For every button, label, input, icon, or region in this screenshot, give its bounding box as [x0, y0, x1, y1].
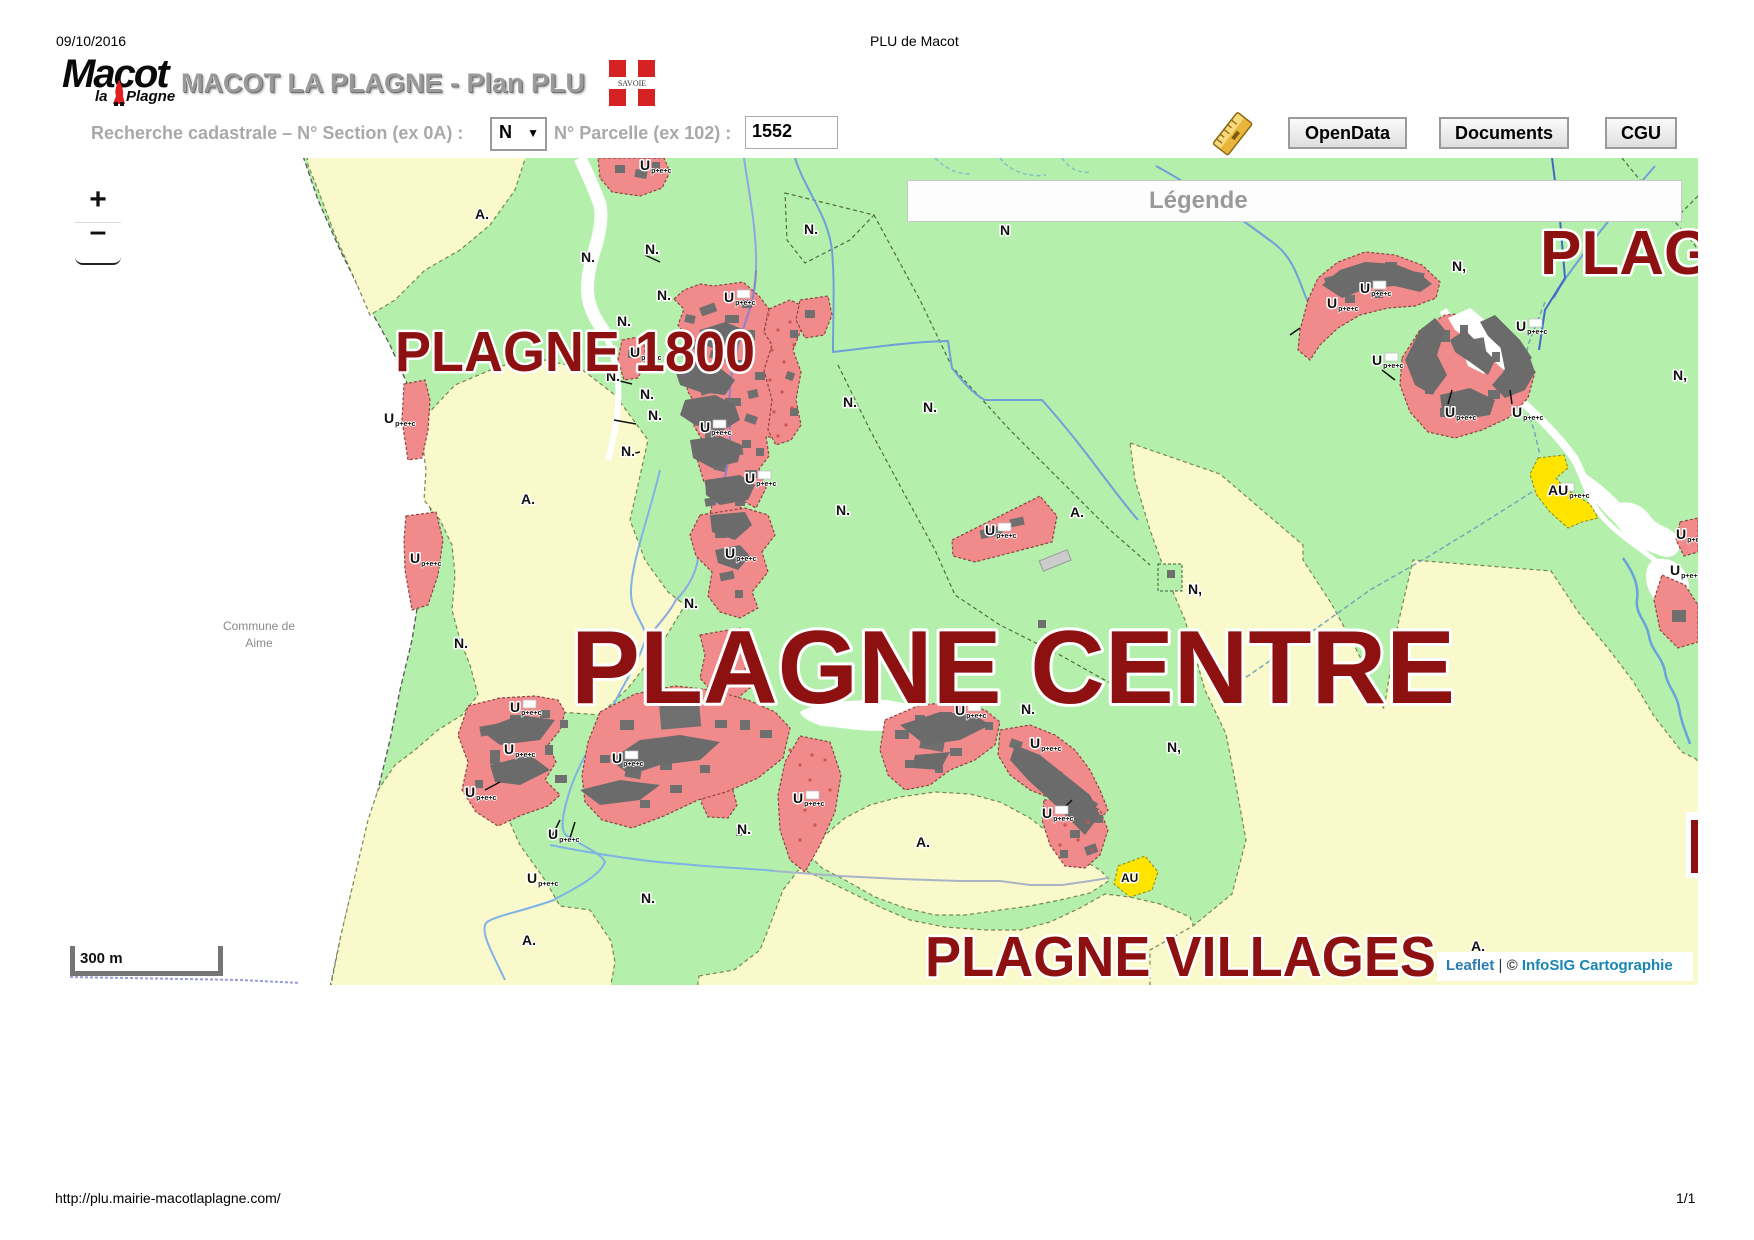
svg-text:N.: N. — [843, 394, 857, 410]
svg-text:N.: N. — [923, 399, 937, 415]
svg-text:SAVOIE: SAVOIE — [618, 79, 646, 88]
svg-text:A.: A. — [521, 491, 535, 507]
svg-text:A.: A. — [522, 932, 536, 948]
svg-text:N.: N. — [657, 287, 671, 303]
svg-text:N.: N. — [621, 443, 635, 459]
svg-text:N.: N. — [836, 502, 850, 518]
svg-text:N.: N. — [454, 635, 468, 651]
svg-text:A.: A. — [475, 206, 489, 222]
svg-text:PLAGNE 1800: PLAGNE 1800 — [395, 320, 755, 384]
svg-text:N,: N, — [1167, 739, 1181, 755]
svg-text:N,: N, — [1673, 367, 1687, 383]
svg-text:PLAGNE VILLAGES: PLAGNE VILLAGES — [925, 925, 1436, 985]
svg-text:N.: N. — [804, 221, 818, 237]
svg-text:N.: N. — [737, 821, 751, 837]
svg-text:A.: A. — [916, 834, 930, 850]
svg-text:N: N — [1000, 222, 1010, 238]
svg-text:N.: N. — [641, 890, 655, 906]
svg-text:N.: N. — [645, 241, 659, 257]
svg-text:N.: N. — [684, 595, 698, 611]
svg-text:N,: N, — [1452, 258, 1466, 274]
svg-text:A.: A. — [1070, 504, 1084, 520]
svg-text:N.: N. — [581, 249, 595, 265]
svg-text:PLAGNE CENTRE: PLAGNE CENTRE — [571, 610, 1455, 726]
svg-text:PLAGNE: PLAGNE — [1540, 219, 1698, 288]
svg-text:N.: N. — [640, 386, 654, 402]
svg-text:Commune de: Commune de — [223, 619, 295, 633]
svg-text:N,: N, — [1188, 581, 1202, 597]
svg-text:Aime: Aime — [245, 636, 273, 650]
svg-text:N.: N. — [648, 407, 662, 423]
svg-text:AU: AU — [1121, 871, 1138, 885]
